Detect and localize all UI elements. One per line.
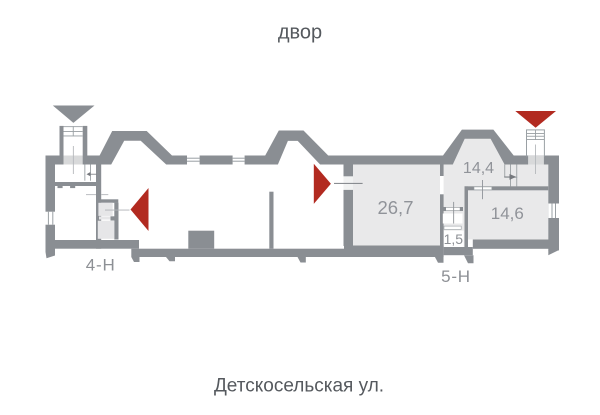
svg-text:14,4: 14,4	[463, 160, 494, 177]
svg-text:14,6: 14,6	[491, 204, 524, 223]
svg-text:Детскосельская ул.: Детскосельская ул.	[214, 376, 384, 397]
svg-text:1,5: 1,5	[444, 231, 464, 247]
svg-text:26,7: 26,7	[377, 197, 413, 218]
svg-text:4-Н: 4-Н	[86, 255, 116, 274]
svg-text:двор: двор	[278, 22, 322, 44]
svg-text:5-Н: 5-Н	[441, 267, 471, 286]
